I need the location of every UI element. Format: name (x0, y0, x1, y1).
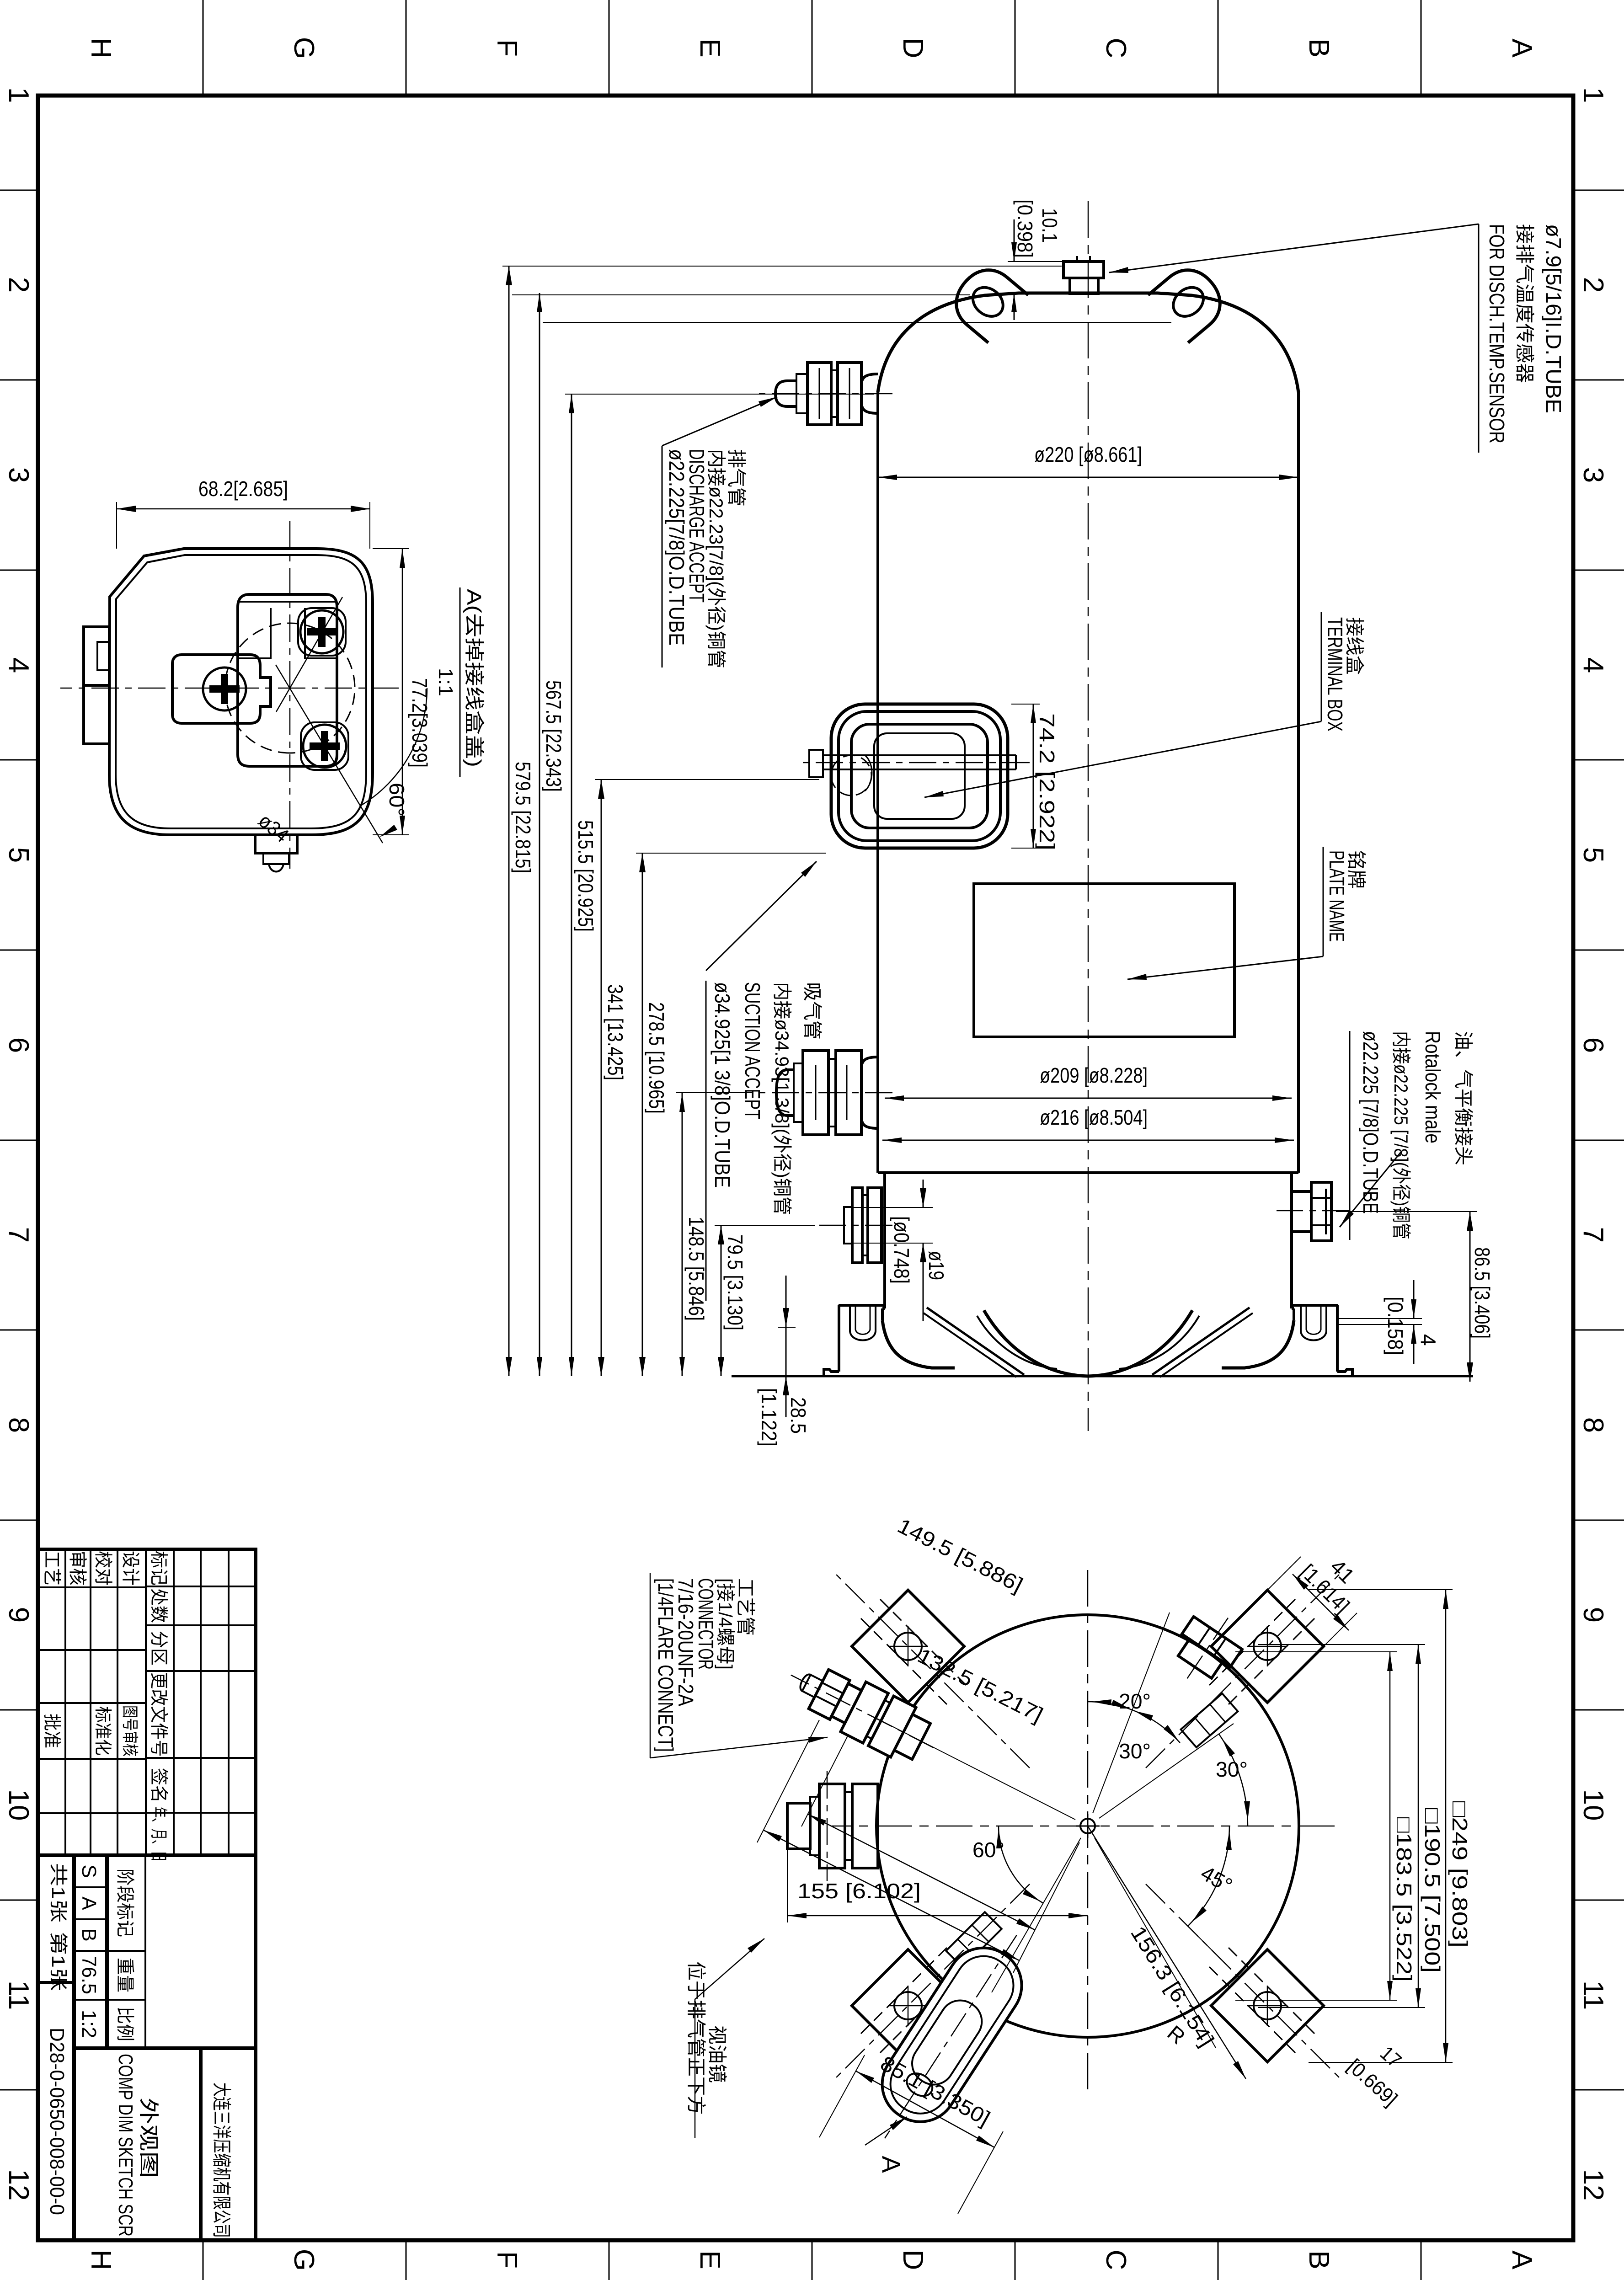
svg-text:30°: 30° (1119, 1739, 1151, 1763)
svg-text:3: 3 (1577, 467, 1609, 483)
svg-text:图号审核: 图号审核 (121, 1705, 139, 1757)
svg-text:60°: 60° (972, 1838, 1004, 1862)
svg-text:10: 10 (3, 1789, 34, 1821)
svg-text:标准化: 标准化 (93, 1706, 112, 1756)
svg-text:D: D (897, 2250, 929, 2270)
svg-text:比例: 比例 (115, 2007, 135, 2041)
svg-text:内接ø22.23[7/8](外径)铜管: 内接ø22.23[7/8](外径)铜管 (705, 449, 727, 668)
svg-text:第1张: 第1张 (48, 1932, 68, 1991)
svg-text:H: H (85, 38, 117, 59)
svg-text:1: 1 (3, 87, 34, 103)
svg-text:A: A (877, 2156, 906, 2173)
svg-text:[1/4FLARE CONNECT]: [1/4FLARE CONNECT] (654, 1578, 678, 1752)
svg-text:4: 4 (3, 657, 34, 673)
svg-text:铭牌: 铭牌 (1346, 850, 1367, 889)
svg-text:77.2[3.039]: 77.2[3.039] (408, 678, 432, 768)
svg-text:74.2 [2.922]: 74.2 [2.922] (1035, 713, 1059, 850)
svg-text:签名: 签名 (149, 1768, 169, 1803)
svg-text:86.5 [3.406]: 86.5 [3.406] (1470, 1247, 1494, 1339)
svg-text:吸气管: 吸气管 (801, 982, 823, 1040)
svg-text:7: 7 (3, 1227, 34, 1243)
svg-text:A: A (1506, 2250, 1538, 2269)
svg-text:278.5 [10.965]: 278.5 [10.965] (645, 1002, 668, 1114)
svg-text:5: 5 (3, 847, 34, 863)
svg-text:□249 [9.803]: □249 [9.803] (1448, 1801, 1472, 1948)
svg-text:阶段标记: 阶段标记 (115, 1869, 135, 1937)
svg-text:76.5: 76.5 (78, 1956, 100, 1994)
svg-text:[0.158]: [0.158] (1384, 1297, 1407, 1355)
svg-text:11: 11 (3, 1981, 34, 2010)
svg-text:28.5: 28.5 (786, 1397, 810, 1434)
svg-text:校对: 校对 (93, 1551, 113, 1586)
svg-text:D28-0-0650-008-00-0: D28-0-0650-008-00-0 (46, 2028, 68, 2215)
svg-text:FOR DISCH.TEMP.SENSOR: FOR DISCH.TEMP.SENSOR (1485, 224, 1509, 443)
svg-text:内接ø34.93[1 3/8](外径)铜管: 内接ø34.93[1 3/8](外径)铜管 (771, 982, 793, 1215)
svg-text:8: 8 (3, 1417, 34, 1433)
svg-text:2: 2 (1577, 277, 1609, 293)
svg-text:S: S (78, 1864, 100, 1878)
svg-text:155 [6.102]: 155 [6.102] (797, 1879, 921, 1903)
svg-text:TERMINAL BOX: TERMINAL BOX (1323, 617, 1347, 732)
svg-text:G: G (288, 2249, 320, 2271)
svg-text:油、气平衡接头: 油、气平衡接头 (1453, 1031, 1474, 1165)
svg-text:[ø0.748]: [ø0.748] (890, 1216, 913, 1284)
svg-text:H: H (85, 2250, 117, 2270)
svg-text:515.5 [20.925]: 515.5 [20.925] (574, 820, 598, 932)
svg-text:68.2[2.685]: 68.2[2.685] (198, 477, 288, 501)
svg-text:567.5 [22.343]: 567.5 [22.343] (542, 680, 566, 792)
svg-text:579.5 [22.815]: 579.5 [22.815] (511, 762, 535, 873)
svg-text:ø209 [ø8.228]: ø209 [ø8.228] (1040, 1063, 1148, 1087)
svg-text:4: 4 (1416, 1334, 1440, 1346)
svg-text:A: A (1506, 38, 1538, 58)
svg-text:SUCTION ACCEPT: SUCTION ACCEPT (741, 982, 764, 1119)
svg-text:10: 10 (1577, 1789, 1609, 1821)
svg-text:ø220 [ø8.661]: ø220 [ø8.661] (1034, 443, 1142, 466)
svg-text:更改文件号: 更改文件号 (149, 1672, 169, 1757)
svg-text:G: G (288, 37, 320, 59)
svg-text:3: 3 (3, 467, 34, 483)
svg-text:B: B (1303, 2250, 1335, 2269)
svg-text:C: C (1100, 2250, 1132, 2270)
svg-text:12: 12 (1577, 2169, 1609, 2201)
svg-text:ø22.225[7/8]O.D.TUBE: ø22.225[7/8]O.D.TUBE (665, 449, 689, 646)
svg-text:B: B (1303, 38, 1335, 57)
svg-text:9: 9 (3, 1607, 34, 1623)
svg-text:1:1: 1:1 (434, 668, 457, 696)
svg-text:重量: 重量 (115, 1958, 135, 1992)
svg-text:标记: 标记 (149, 1551, 169, 1586)
svg-text:ø19: ø19 (924, 1251, 948, 1280)
svg-text:341 [13.425]: 341 [13.425] (604, 984, 627, 1080)
svg-text:60°: 60° (385, 783, 409, 817)
svg-text:9: 9 (1577, 1607, 1609, 1623)
svg-text:A(去掉接线盒盖): A(去掉接线盒盖) (463, 589, 485, 767)
svg-text:共1张: 共1张 (48, 1863, 68, 1922)
svg-text:6: 6 (3, 1037, 34, 1053)
svg-text:外观图: 外观图 (137, 2098, 160, 2178)
svg-text:ø7.9[5/16]I.D.TUBE: ø7.9[5/16]I.D.TUBE (1542, 224, 1565, 413)
svg-text:接排气温度传感器: 接排气温度传感器 (1514, 224, 1535, 383)
svg-text:7: 7 (1577, 1227, 1609, 1243)
svg-text:E: E (694, 38, 726, 57)
svg-text:[接1/4螺母]: [接1/4螺母] (715, 1578, 736, 1670)
svg-text:6: 6 (1577, 1037, 1609, 1053)
svg-text:F: F (491, 2251, 523, 2269)
svg-text:E: E (694, 2250, 726, 2269)
svg-text:2: 2 (3, 277, 34, 293)
svg-text:批准: 批准 (42, 1714, 62, 1748)
svg-text:Rotalock male: Rotalock male (1421, 1031, 1445, 1143)
svg-text:30°: 30° (1216, 1757, 1248, 1781)
svg-text:位于排气管正下方: 位于排气管正下方 (685, 1961, 707, 2115)
svg-text:5: 5 (1577, 847, 1609, 863)
svg-text:工艺: 工艺 (42, 1551, 62, 1586)
svg-text:ø216 [ø8.504]: ø216 [ø8.504] (1040, 1105, 1148, 1129)
svg-text:工艺管: 工艺管 (735, 1578, 756, 1636)
svg-text:4: 4 (1577, 657, 1609, 673)
svg-text:□190.5 [7.500]: □190.5 [7.500] (1421, 1808, 1444, 1973)
svg-text:1:2: 1:2 (78, 2010, 100, 2038)
svg-text:11: 11 (1577, 1981, 1609, 2010)
svg-text:□183.5 [3.522]: □183.5 [3.522] (1392, 1817, 1416, 1982)
svg-text:1: 1 (1577, 87, 1609, 103)
svg-text:大连三洋压缩机有限公司: 大连三洋压缩机有限公司 (211, 2082, 232, 2238)
svg-text:ø22.225 [7/8]O.D.TUBE: ø22.225 [7/8]O.D.TUBE (1359, 1031, 1383, 1214)
svg-text:79.5 [3.130]: 79.5 [3.130] (723, 1234, 747, 1330)
svg-text:PLATE NAME: PLATE NAME (1325, 850, 1349, 942)
svg-text:10.1: 10.1 (1038, 208, 1062, 243)
svg-text:分区: 分区 (149, 1631, 169, 1666)
svg-text:接线盒: 接线盒 (1344, 617, 1365, 675)
svg-text:8: 8 (1577, 1417, 1609, 1433)
svg-text:内接ø22.225 [7/8](外径)铜管: 内接ø22.225 [7/8](外径)铜管 (1390, 1031, 1412, 1239)
svg-text:视油镜: 视油镜 (706, 2025, 728, 2083)
svg-text:F: F (491, 39, 523, 57)
svg-text:B: B (78, 1928, 100, 1941)
svg-text:处数: 处数 (149, 1588, 169, 1623)
svg-text:审核: 审核 (67, 1551, 87, 1586)
svg-text:设计: 设计 (120, 1551, 140, 1586)
svg-text:ø34.925[1 3/8]O.D.TUBE: ø34.925[1 3/8]O.D.TUBE (710, 982, 734, 1188)
svg-text:年、月、日: 年、月、日 (149, 1807, 168, 1862)
svg-text:D: D (897, 38, 929, 59)
svg-text:12: 12 (3, 2169, 34, 2201)
svg-text:[0.398]: [0.398] (1013, 199, 1037, 258)
svg-text:[1.122]: [1.122] (757, 1388, 781, 1447)
svg-text:COMP DIM SKETCH SCR: COMP DIM SKETCH SCR (114, 2054, 137, 2237)
svg-text:排气管: 排气管 (726, 449, 747, 507)
svg-text:C: C (1100, 38, 1132, 59)
svg-text:148.5 [5.846]: 148.5 [5.846] (684, 1217, 708, 1321)
svg-text:20°: 20° (1119, 1689, 1151, 1713)
svg-text:A: A (78, 1896, 100, 1910)
